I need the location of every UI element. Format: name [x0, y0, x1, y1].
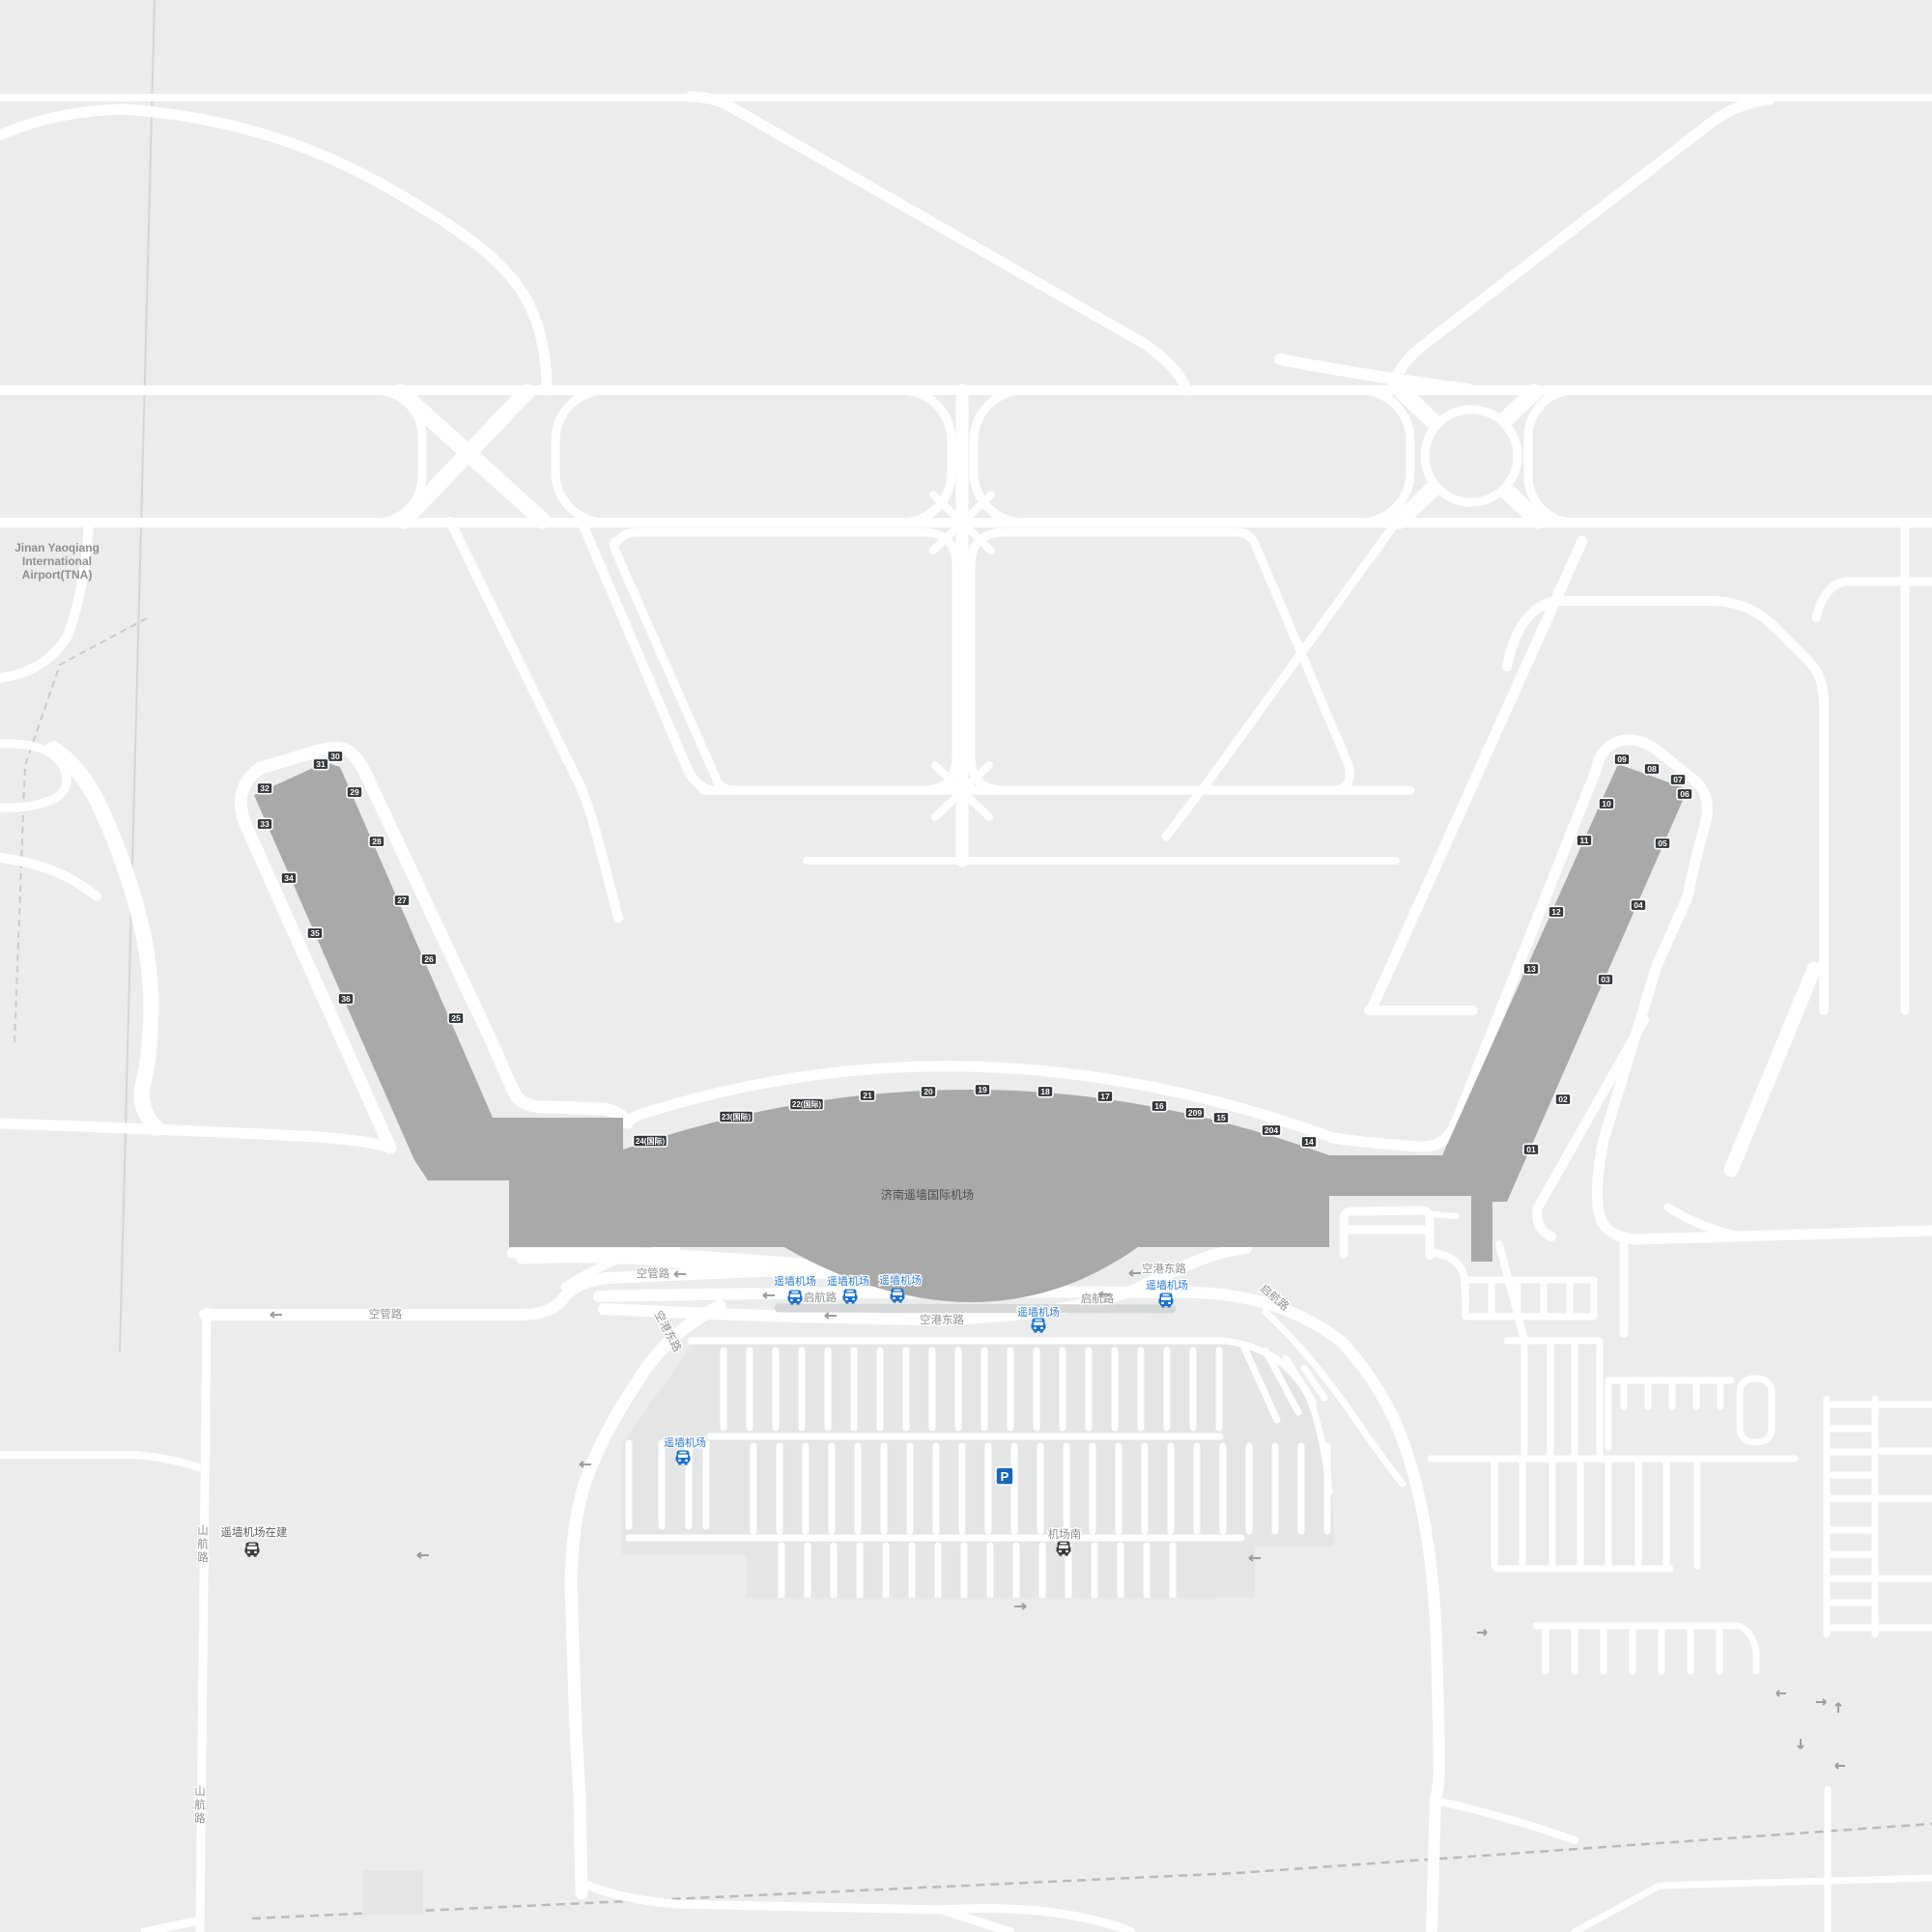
svg-text:遥墙机场: 遥墙机场	[827, 1274, 869, 1288]
svg-text:204: 204	[1264, 1125, 1279, 1135]
svg-text:19: 19	[978, 1085, 987, 1094]
svg-text:31: 31	[316, 759, 326, 769]
svg-text:35: 35	[310, 928, 320, 938]
svg-text:空管路: 空管路	[369, 1307, 403, 1321]
svg-text:09: 09	[1617, 754, 1627, 764]
svg-text:22(国际): 22(国际)	[792, 1099, 822, 1109]
svg-text:01: 01	[1526, 1145, 1536, 1154]
svg-text:209: 209	[1188, 1108, 1203, 1118]
svg-text:遥墙机场: 遥墙机场	[879, 1273, 922, 1287]
svg-text:遥墙机场: 遥墙机场	[664, 1435, 706, 1449]
svg-text:遥墙机场: 遥墙机场	[1146, 1278, 1188, 1292]
svg-text:空管路: 空管路	[637, 1266, 670, 1280]
svg-text:27: 27	[397, 895, 407, 905]
svg-text:18: 18	[1040, 1087, 1050, 1096]
svg-text:International: International	[22, 554, 92, 568]
svg-text:P: P	[1001, 1469, 1009, 1484]
svg-text:空港东路: 空港东路	[1142, 1262, 1186, 1275]
svg-text:Jinan Yaoqiang: Jinan Yaoqiang	[14, 541, 99, 554]
svg-text:遥墙机场: 遥墙机场	[1017, 1305, 1060, 1319]
svg-text:遥墙机场在建: 遥墙机场在建	[221, 1525, 288, 1539]
svg-text:24(国际): 24(国际)	[636, 1136, 666, 1146]
svg-text:33: 33	[260, 819, 270, 829]
svg-text:空港东路: 空港东路	[920, 1313, 964, 1326]
svg-text:34: 34	[284, 873, 294, 883]
svg-text:08: 08	[1647, 764, 1657, 774]
svg-text:15: 15	[1216, 1113, 1226, 1122]
svg-text:11: 11	[1579, 836, 1588, 845]
svg-text:山航路: 山航路	[194, 1785, 206, 1825]
svg-text:14: 14	[1304, 1137, 1314, 1147]
svg-text:山航路: 山航路	[197, 1524, 209, 1564]
svg-text:06: 06	[1680, 789, 1690, 799]
svg-text:04: 04	[1634, 900, 1643, 910]
svg-text:21: 21	[863, 1091, 872, 1100]
svg-text:16: 16	[1154, 1101, 1164, 1111]
svg-text:17: 17	[1100, 1092, 1110, 1101]
svg-text:32: 32	[260, 783, 270, 793]
svg-text:29: 29	[350, 787, 359, 797]
svg-text:13: 13	[1526, 964, 1536, 974]
svg-text:遥墙机场: 遥墙机场	[774, 1274, 816, 1288]
svg-text:07: 07	[1673, 775, 1683, 784]
svg-text:30: 30	[330, 752, 340, 761]
svg-text:28: 28	[372, 837, 382, 846]
svg-text:10: 10	[1602, 799, 1611, 809]
svg-text:05: 05	[1658, 838, 1667, 848]
svg-text:03: 03	[1601, 975, 1610, 984]
svg-text:Airport(TNA): Airport(TNA)	[22, 568, 93, 582]
svg-text:23(国际): 23(国际)	[722, 1112, 752, 1122]
svg-text:启航路: 启航路	[804, 1291, 838, 1304]
svg-text:26: 26	[424, 954, 434, 964]
svg-text:20: 20	[923, 1087, 933, 1096]
svg-text:济南遥墙国际机场: 济南遥墙国际机场	[881, 1187, 974, 1202]
svg-text:25: 25	[451, 1013, 461, 1023]
svg-text:机场南: 机场南	[1048, 1527, 1082, 1541]
svg-text:02: 02	[1558, 1094, 1568, 1104]
svg-text:36: 36	[341, 994, 351, 1004]
svg-text:12: 12	[1551, 907, 1561, 917]
